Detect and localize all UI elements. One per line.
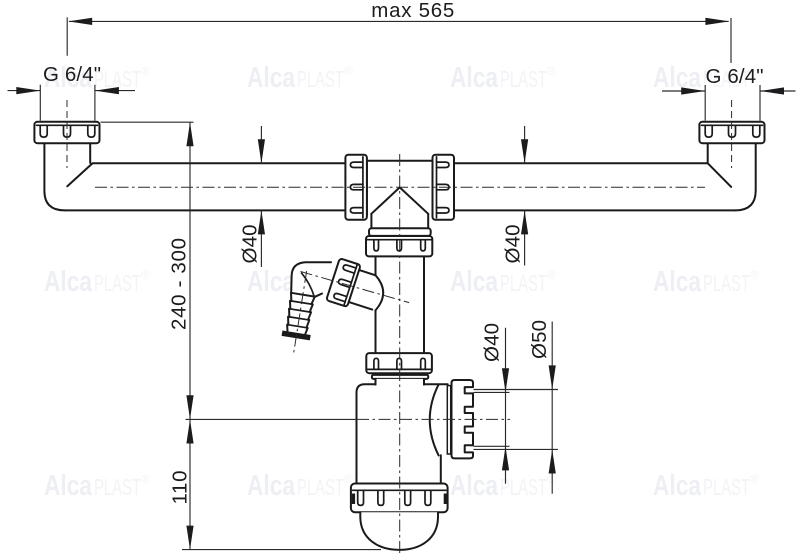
svg-text:Alca: Alca: [450, 470, 499, 502]
svg-text:Alca: Alca: [247, 470, 296, 502]
svg-text:®: ®: [344, 64, 353, 78]
svg-text:max 565: max 565: [371, 0, 454, 22]
svg-text:Alca: Alca: [44, 470, 93, 502]
svg-text:®: ®: [750, 472, 759, 486]
svg-text:Alca: Alca: [653, 62, 702, 94]
svg-text:G 6/4": G 6/4": [706, 65, 764, 88]
svg-text:Alca: Alca: [450, 266, 499, 298]
svg-text:Ø40: Ø40: [481, 323, 504, 362]
svg-text:Ø40: Ø40: [502, 225, 525, 264]
svg-text:Alca: Alca: [653, 470, 702, 502]
svg-text:®: ®: [141, 64, 150, 78]
svg-text:240 - 300: 240 - 300: [168, 238, 191, 330]
svg-text:®: ®: [141, 472, 150, 486]
svg-text:PLAST: PLAST: [500, 66, 547, 92]
svg-text:PLAST: PLAST: [94, 270, 141, 296]
svg-text:G 6/4": G 6/4": [43, 63, 101, 86]
svg-text:Ø40: Ø40: [239, 225, 262, 264]
svg-text:PLAST: PLAST: [297, 474, 344, 500]
svg-text:Alca: Alca: [44, 266, 93, 298]
svg-text:®: ®: [547, 64, 556, 78]
svg-text:Alca: Alca: [247, 62, 296, 94]
svg-text:Alca: Alca: [653, 266, 702, 298]
svg-text:110: 110: [169, 471, 192, 505]
svg-text:®: ®: [547, 472, 556, 486]
svg-text:Ø50: Ø50: [528, 320, 551, 359]
svg-text:®: ®: [547, 268, 556, 282]
svg-text:PLAST: PLAST: [500, 270, 547, 296]
svg-text:PLAST: PLAST: [703, 474, 750, 500]
svg-text:PLAST: PLAST: [500, 474, 547, 500]
svg-text:®: ®: [750, 268, 759, 282]
svg-text:Alca: Alca: [247, 266, 296, 298]
svg-text:PLAST: PLAST: [703, 270, 750, 296]
svg-text:PLAST: PLAST: [94, 474, 141, 500]
svg-text:Alca: Alca: [450, 62, 499, 94]
svg-text:PLAST: PLAST: [297, 66, 344, 92]
svg-text:®: ®: [141, 268, 150, 282]
